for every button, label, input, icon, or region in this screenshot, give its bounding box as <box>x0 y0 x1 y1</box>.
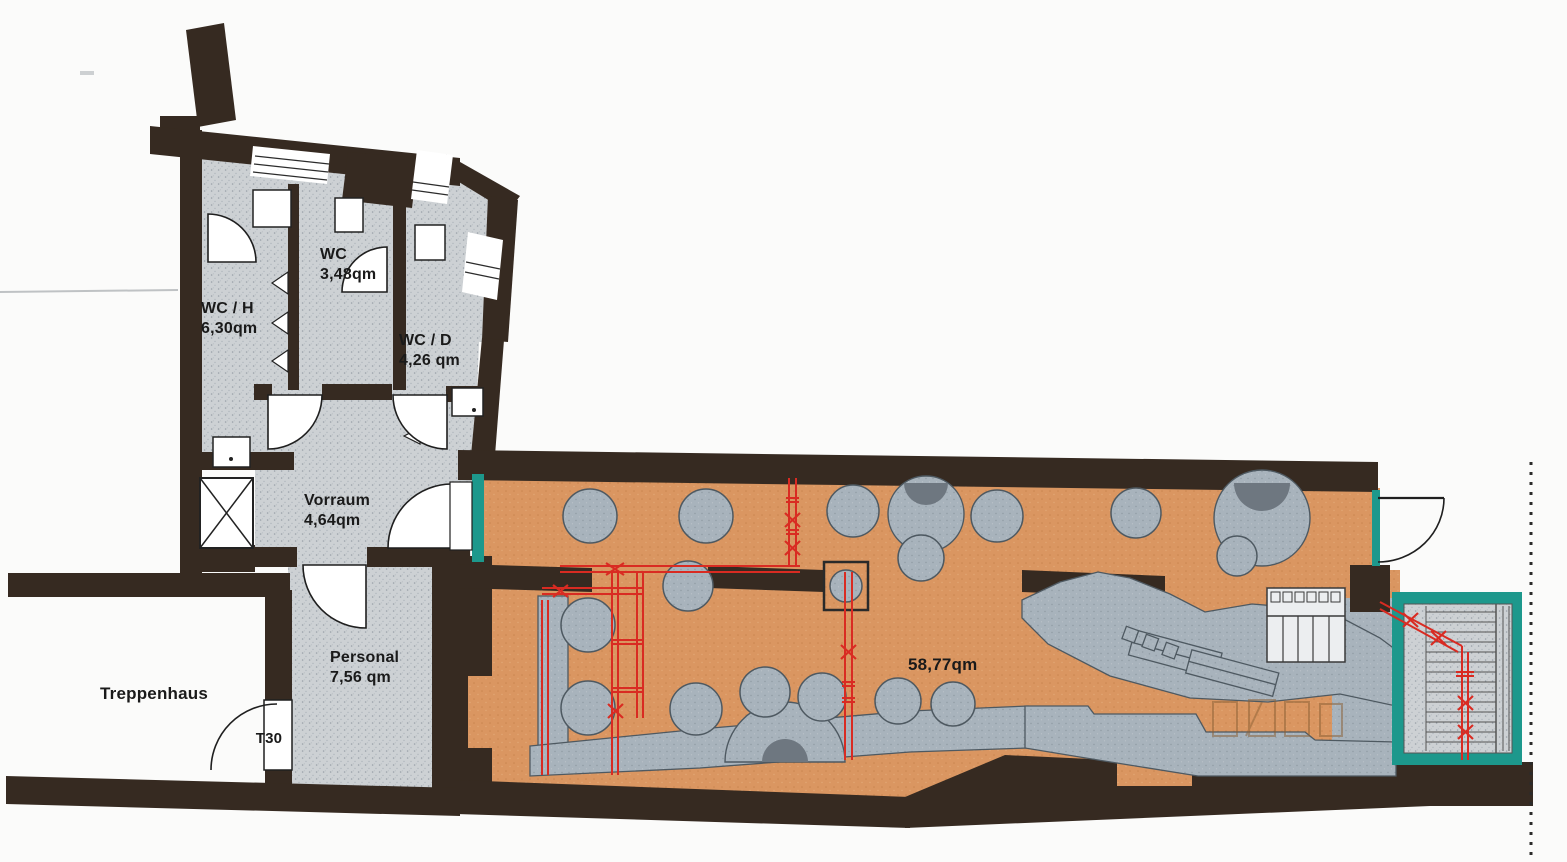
left-window-teal <box>472 474 484 562</box>
room-label-vorraum: Vorraum 4,64qm <box>304 491 370 531</box>
entry-door-teal <box>1372 490 1380 566</box>
room-name: Vorraum <box>304 492 370 509</box>
room-name: WC <box>320 246 347 263</box>
door-label-t30: T30 <box>243 730 295 749</box>
entry-door <box>1378 498 1444 562</box>
floor-plan-page: WC / H 6,30qm WC 3,48qm WC / D 4,26 qm V… <box>0 0 1567 862</box>
toilet <box>335 198 363 232</box>
room-name: Treppenhaus <box>100 684 208 703</box>
shaft-box <box>200 478 253 548</box>
window-2 <box>411 150 453 204</box>
floor-plan-drawing <box>0 0 1567 862</box>
chimney-wall <box>186 23 236 127</box>
room-label-wc: WC 3,48qm <box>320 245 376 285</box>
treppenhaus-right-wall <box>265 590 292 704</box>
scan-artifacts <box>0 71 178 292</box>
sink <box>452 388 483 416</box>
room-label-treppenhaus: Treppenhaus <box>100 683 208 704</box>
room-area: 6,30qm <box>201 320 257 337</box>
door-leaf-vorraum <box>450 482 472 550</box>
bar-equipment <box>1267 588 1345 662</box>
window-3 <box>462 232 503 300</box>
toilet <box>415 225 445 260</box>
room-area: 3,48qm <box>320 266 376 283</box>
room-label-wc-h: WC / H 6,30qm <box>201 299 257 339</box>
treppenhaus-top-wall <box>8 573 290 597</box>
toilet <box>253 190 291 227</box>
room-area: 4,26 qm <box>399 352 460 369</box>
room-name: Personal <box>330 649 399 666</box>
room-label-wc-d: WC / D 4,26 qm <box>399 331 460 371</box>
left-wall <box>180 130 202 586</box>
room-label-personal: Personal 7,56 qm <box>330 648 399 688</box>
wall-below-stairs <box>1392 762 1533 806</box>
room-label-main-area: 58,77qm <box>908 654 977 675</box>
room-area: 58,77qm <box>908 655 977 674</box>
room-area: 4,64qm <box>304 512 360 529</box>
room-name: WC / H <box>201 300 254 317</box>
room-name: WC / D <box>399 332 452 349</box>
sink <box>213 437 250 467</box>
room-area: 7,56 qm <box>330 669 391 686</box>
